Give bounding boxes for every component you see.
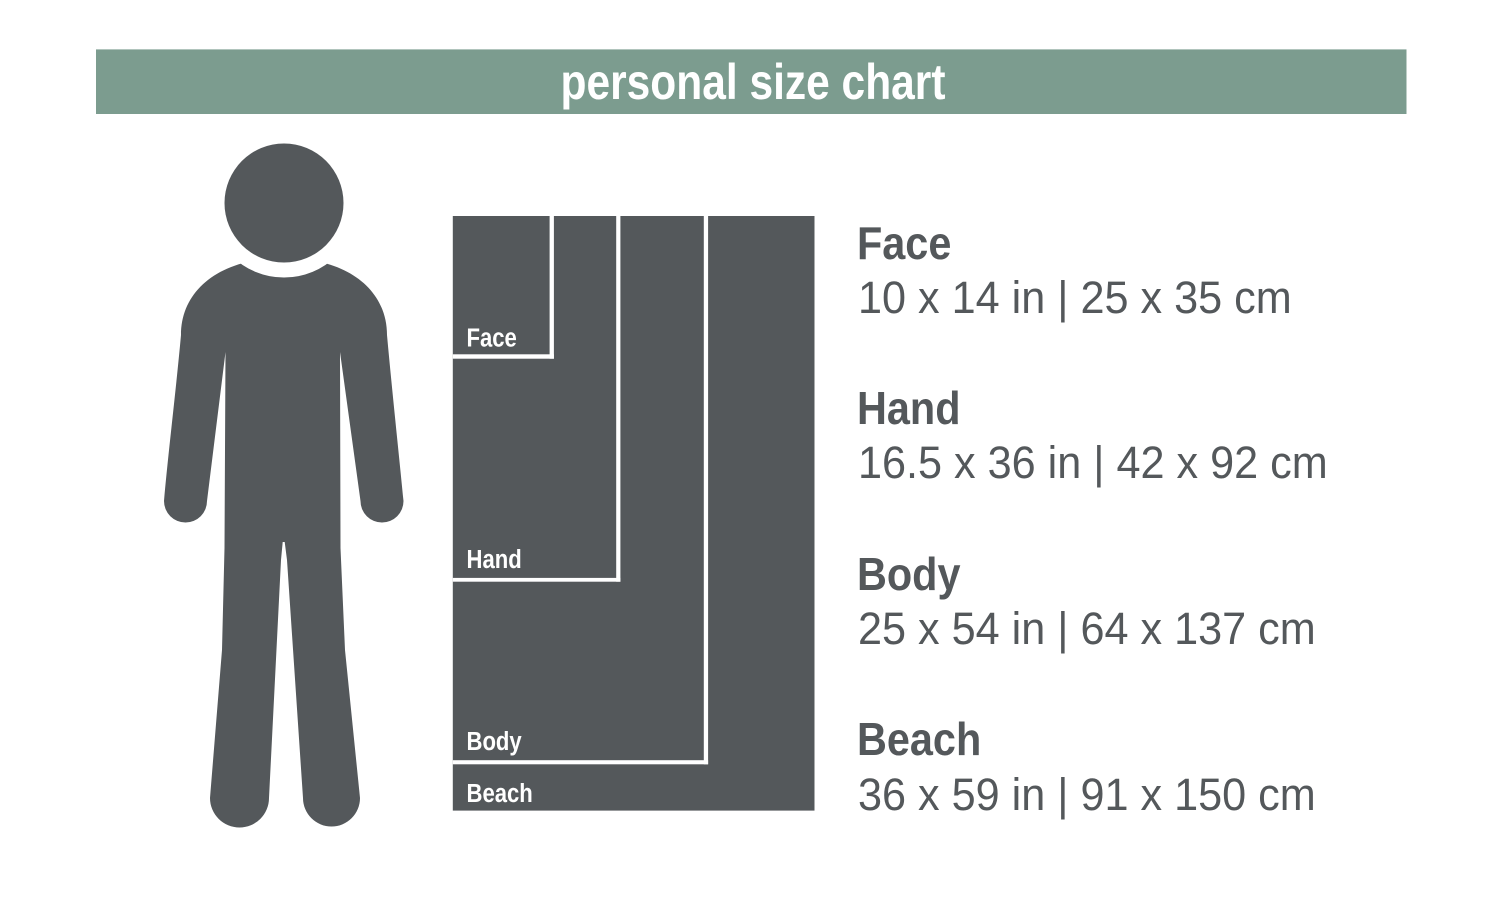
svg-text:Body: Body xyxy=(467,727,523,756)
svg-text:Beach: Beach xyxy=(467,779,533,808)
svg-text:Body: Body xyxy=(857,549,961,601)
svg-text:Face: Face xyxy=(857,218,951,270)
svg-text:16.5 x 36 in | 42 x 92 cm: 16.5 x 36 in | 42 x 92 cm xyxy=(858,438,1328,488)
svg-text:25 x 54 in | 64 x 137 cm: 25 x 54 in | 64 x 137 cm xyxy=(858,604,1316,654)
svg-text:Hand: Hand xyxy=(857,383,960,435)
svg-text:10 x 14 in | 25 x 35 cm: 10 x 14 in | 25 x 35 cm xyxy=(858,273,1292,323)
svg-text:Face: Face xyxy=(467,324,517,353)
svg-text:36 x 59 in | 91 x 150 cm: 36 x 59 in | 91 x 150 cm xyxy=(858,770,1316,820)
svg-text:Beach: Beach xyxy=(857,714,981,766)
svg-text:personal size chart: personal size chart xyxy=(561,54,946,110)
svg-text:Hand: Hand xyxy=(467,545,522,574)
